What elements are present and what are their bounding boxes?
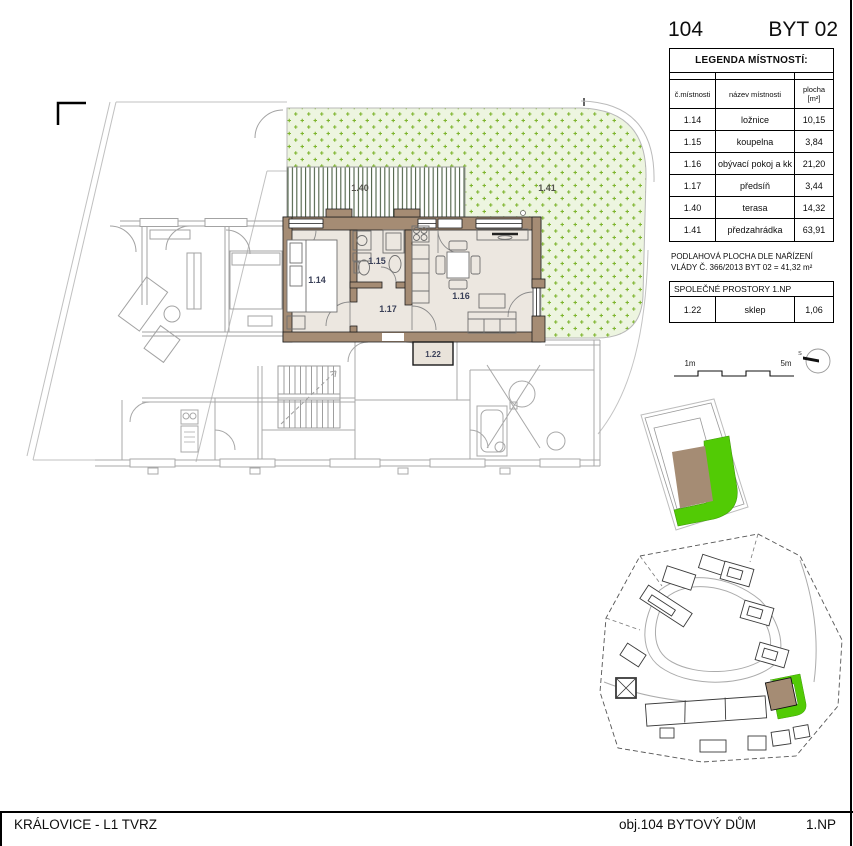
legend-column-headers: č.místnosti název místnosti plocha [m²]: [670, 80, 833, 109]
garden-label: 1.41: [538, 183, 556, 193]
legend-table: LEGENDA MÍSTNOSTÍ: č.místnosti název mís…: [669, 48, 834, 242]
site-plan: [600, 534, 842, 762]
neighbor-unit-left: [110, 110, 283, 362]
legend-title: LEGENDA MÍSTNOSTÍ:: [670, 49, 833, 73]
scale-left-label: 1m: [684, 359, 695, 368]
plan-corner-wall: [58, 103, 86, 125]
col-area: plocha [m²]: [794, 80, 833, 108]
footer-floor: 1.NP: [806, 817, 836, 832]
site-plan-highlight: [765, 674, 806, 719]
col-room-name: název místnosti: [715, 80, 794, 108]
bedroom-label: 1.14: [308, 275, 326, 285]
cellar-unit: 1.22: [413, 342, 453, 365]
footer-divider: [0, 811, 853, 813]
legend-row: 1.41 předzahrádka 63,91: [670, 219, 833, 241]
scale-right-label: 5m: [780, 359, 791, 368]
legend-row: 1.16 obývací pokoj a kk 21,20: [670, 153, 833, 175]
common-spaces-row: 1.22 sklep 1,06: [670, 297, 833, 322]
common-spaces-table: SPOLEČNÉ PROSTORY 1.NP 1.22 sklep 1,06: [669, 281, 834, 323]
common-spaces-title: SPOLEČNÉ PROSTORY 1.NP: [670, 282, 833, 297]
hall-label: 1.17: [379, 304, 397, 314]
page-border-right: [850, 0, 852, 846]
floor-area-note: PODLAHOVÁ PLOCHA DLE NAŘÍZENÍ VLÁDY Č. 3…: [671, 251, 836, 273]
legend-row: 1.17 předsíň 3,44: [670, 175, 833, 197]
neighbor-rooms-lower: [95, 340, 600, 474]
north-compass: S: [798, 349, 830, 373]
legend-row: 1.14 ložnice 10,15: [670, 109, 833, 131]
apartment-unit: 1.14 1.15 1.16 1.17: [283, 209, 545, 342]
stairwell: [278, 366, 340, 428]
footer-project-name: KRÁLOVICE - L1 TVRZ: [14, 817, 157, 832]
terrace-area: 1.40: [287, 167, 465, 217]
legend-spacer-row: [670, 73, 833, 80]
bathroom-label: 1.15: [368, 256, 386, 266]
unit-label: BYT 02: [768, 18, 838, 42]
drawing-sheet: 1.41 1.40: [0, 0, 853, 846]
unit-number: 104: [668, 18, 703, 42]
sheet-header: 104 BYT 02: [668, 18, 838, 42]
north-label: S: [798, 351, 802, 357]
living-label: 1.16: [452, 291, 470, 301]
footer-building: obj.104 BYTOVÝ DŮM: [619, 817, 756, 832]
building-keyplan: [641, 399, 748, 530]
page-border-left: [0, 811, 2, 846]
legend-row: 1.15 koupelna 3,84: [670, 131, 833, 153]
cellar-label: 1.22: [425, 350, 441, 359]
legend-row: 1.40 terasa 14,32: [670, 197, 833, 219]
scale-bar: 1m 5m: [674, 359, 794, 376]
terrace-label: 1.40: [351, 183, 369, 193]
col-room-number: č.místnosti: [670, 80, 715, 108]
